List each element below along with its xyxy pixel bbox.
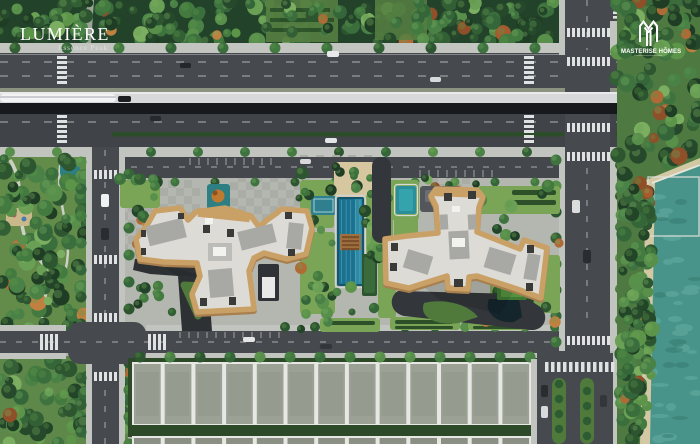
svg-text:Essence Peak: Essence Peak	[58, 43, 108, 52]
svg-text:MASTERISE HÔMES: MASTERISE HÔMES	[621, 47, 681, 55]
svg-text:LUMIÈRE: LUMIÈRE	[20, 23, 110, 44]
